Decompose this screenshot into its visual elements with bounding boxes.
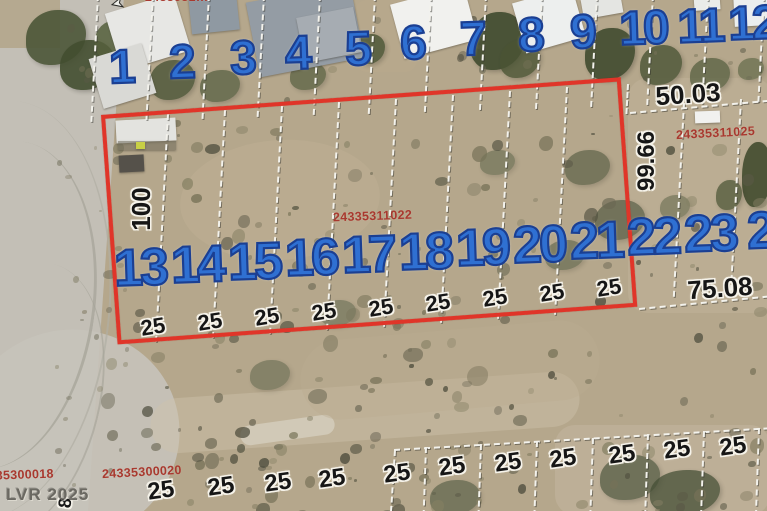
dimension-label: 99.66 <box>635 131 659 191</box>
lot-number: 21 <box>569 214 623 268</box>
shrub <box>235 427 249 438</box>
shrub <box>455 493 461 497</box>
shrub <box>350 444 362 454</box>
shrub <box>219 457 224 461</box>
lot-number: 11 <box>677 2 723 52</box>
shrub <box>276 444 287 456</box>
lot-width-label: 25 <box>548 445 578 472</box>
building-roof <box>188 0 240 34</box>
shrub <box>619 414 623 418</box>
shrub <box>246 487 251 493</box>
shrub <box>63 464 66 467</box>
lot-width-label: 25 <box>196 309 224 335</box>
lot-number: 10 <box>618 4 667 54</box>
shrub <box>123 362 127 367</box>
dimension-label: 75.08 <box>687 273 754 303</box>
lot-number: 1 <box>108 44 133 93</box>
lot-line <box>533 441 538 511</box>
lot-number: 17 <box>341 228 395 282</box>
shrub <box>576 500 588 509</box>
shrub <box>212 344 219 349</box>
shrub <box>236 369 242 373</box>
shrub <box>653 500 663 506</box>
shrub <box>237 444 246 452</box>
shrub <box>696 267 700 270</box>
lot-width-label: 25 <box>317 465 347 492</box>
lot-number: 19 <box>455 221 509 275</box>
lot-number: 5 <box>344 26 369 75</box>
lot-width-label: 25 <box>424 290 452 316</box>
shrub <box>328 66 337 73</box>
shrub <box>323 335 338 352</box>
shrub <box>454 402 469 412</box>
satellite-parcel-map: LVR 2025 ➤ 12345678910111213141516171819… <box>0 0 767 511</box>
lot-number: 13 <box>113 241 167 295</box>
shrub <box>434 413 439 419</box>
shrub <box>307 416 313 420</box>
lot-number: 4 <box>284 30 309 79</box>
shrub <box>55 448 62 453</box>
shrub <box>151 352 165 363</box>
shrub <box>370 444 376 449</box>
shrub <box>754 307 767 318</box>
shrub <box>676 503 686 511</box>
lot-width-label: 25 <box>493 449 523 476</box>
lot-width-label: 25 <box>437 453 467 480</box>
parcel-number: 24335311022 <box>333 209 412 224</box>
shrub <box>513 415 527 426</box>
shrub <box>746 76 752 80</box>
parcel-number: 24335300018 <box>0 468 54 483</box>
lot-width-label: 25 <box>662 436 692 463</box>
shrub <box>732 307 738 311</box>
shrub <box>710 414 714 418</box>
watermark: LVR 2025 <box>6 485 89 505</box>
shrub <box>426 429 431 433</box>
shrub <box>67 24 75 32</box>
shrub <box>106 307 112 313</box>
building-roof <box>695 111 720 124</box>
lot-number: 16 <box>284 231 338 285</box>
lot-width-label: 25 <box>206 473 236 500</box>
tree-cluster <box>250 360 290 390</box>
lot-width-label: 25 <box>253 304 281 330</box>
lot-width-label: 25 <box>718 433 748 460</box>
shrub <box>360 384 369 390</box>
shrub <box>694 54 698 57</box>
shrub <box>432 492 436 495</box>
shrub <box>548 349 558 358</box>
shrub <box>409 364 413 369</box>
shrub <box>720 503 727 510</box>
lot-width-label: 25 <box>481 285 509 311</box>
dimension-label: 100 <box>128 187 154 230</box>
shrub <box>305 476 315 488</box>
shrub <box>370 432 381 442</box>
shrub <box>84 77 90 82</box>
lot-width-label: 25 <box>382 460 412 487</box>
lot-number: 20 <box>512 218 566 272</box>
shrub <box>178 428 182 432</box>
shrub <box>694 333 703 344</box>
shrub <box>315 377 323 382</box>
shrub <box>625 473 631 478</box>
lot-number: 8 <box>517 12 542 61</box>
lot-number: 2 <box>746 205 767 258</box>
shrub <box>750 368 757 375</box>
shrub <box>73 276 79 283</box>
lot-number: 7 <box>459 16 484 65</box>
lot-width-label: 25 <box>146 477 176 504</box>
shrub <box>393 323 401 331</box>
shrub <box>101 393 115 409</box>
lot-number: 12 <box>727 0 767 49</box>
lot-number: 22 <box>626 210 680 264</box>
lot-number: 6 <box>399 20 424 69</box>
shrub <box>348 477 351 480</box>
shrub <box>256 503 270 511</box>
lot-number: 18 <box>398 225 452 279</box>
shrub <box>527 453 532 456</box>
shrub <box>187 499 194 506</box>
lot-width-label: 25 <box>139 314 167 340</box>
shrub <box>94 334 99 340</box>
shrub <box>370 377 382 384</box>
shrub <box>431 500 444 511</box>
shrub <box>494 406 501 414</box>
shrub <box>748 461 756 467</box>
shrub <box>205 453 218 469</box>
lot-number: 2 <box>168 39 193 88</box>
shrub <box>269 458 277 464</box>
lot-width-label: 25 <box>607 441 637 468</box>
lot-width-label: 25 <box>263 469 293 496</box>
lot-width-label: 25 <box>595 275 623 301</box>
lot-width-label: 25 <box>310 299 338 325</box>
lot-width-label: 25 <box>367 295 395 321</box>
dimension-label: 50.03 <box>655 79 722 109</box>
shrub <box>63 417 68 421</box>
parcel-number: 2433531… <box>145 0 209 4</box>
shrub <box>518 484 527 494</box>
shrub <box>368 388 375 393</box>
shrub <box>680 397 689 406</box>
shrub <box>500 316 510 324</box>
lot-number: 14 <box>170 238 224 292</box>
shrub <box>719 322 726 330</box>
shrub <box>97 386 103 392</box>
shrub <box>717 341 727 352</box>
shrub <box>742 174 754 186</box>
shrub <box>728 61 734 65</box>
shrub <box>214 393 223 403</box>
shrub <box>354 479 357 482</box>
shrub <box>443 386 447 391</box>
shrub <box>82 310 87 313</box>
shrub <box>616 72 621 76</box>
shrub <box>677 492 687 501</box>
shrub <box>107 430 118 441</box>
shrub <box>425 378 432 385</box>
lot-width-label: 25 <box>538 280 566 306</box>
lot-number: 23 <box>683 207 737 261</box>
shrub <box>198 426 202 430</box>
shrub <box>230 454 239 464</box>
shrub <box>650 273 653 277</box>
lot-number: 9 <box>569 9 594 58</box>
lot-number: 15 <box>227 235 281 289</box>
shrub <box>707 456 711 459</box>
shrub <box>712 144 726 156</box>
shrub <box>57 160 62 165</box>
lot-number: 3 <box>229 35 254 84</box>
shrub <box>205 438 218 448</box>
